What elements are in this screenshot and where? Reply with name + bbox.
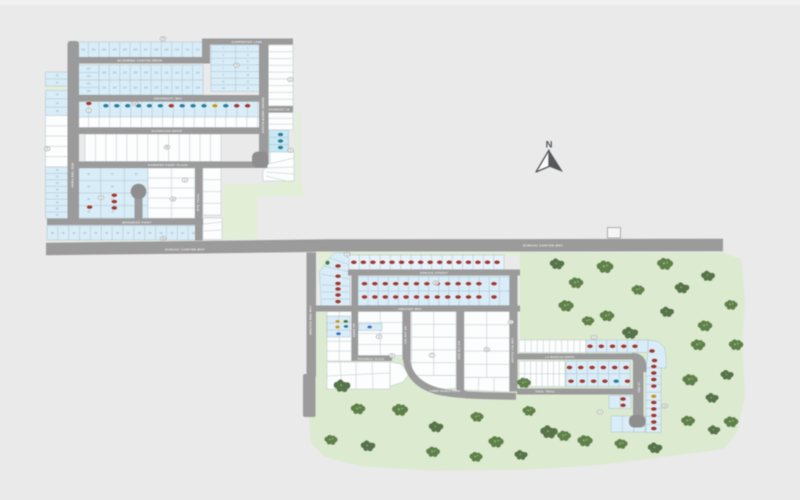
svg-text:N: N — [546, 140, 553, 151]
svg-text:202: 202 — [92, 49, 97, 52]
svg-text:117: 117 — [123, 86, 127, 89]
svg-text:207: 207 — [144, 49, 149, 52]
svg-text:STARDUST LN: STARDUST LN — [268, 109, 289, 112]
svg-text:ARCTIC FIN WAY: ARCTIC FIN WAY — [512, 337, 515, 362]
svg-text:PERENNIAL PLACE: PERENNIAL PLACE — [358, 358, 385, 361]
svg-text:201: 201 — [81, 49, 86, 52]
svg-text:123: 123 — [185, 86, 190, 89]
svg-text:SUNUAC CANYON WAY: SUNUAC CANYON WAY — [165, 248, 205, 252]
svg-text:109: 109 — [144, 71, 149, 74]
svg-text:SPRUCE STREET: SPRUCE STREET — [420, 271, 448, 275]
svg-text:BRETON RED WAY: BRETON RED WAY — [309, 305, 313, 334]
svg-text:VERA DEL SUR: VERA DEL SUR — [71, 163, 75, 188]
svg-text:120: 120 — [154, 86, 159, 89]
svg-text:KERN DR: KERN DR — [353, 323, 356, 337]
svg-text:BLUEWING CANYON DRIVE: BLUEWING CANYON DRIVE — [118, 59, 163, 63]
svg-text:205: 205 — [123, 49, 128, 52]
svg-text:SANDERS POINT PLACE: SANDERS POINT PLACE — [148, 163, 188, 167]
svg-text:RYE TRAIL: RYE TRAIL — [196, 193, 200, 211]
svg-text:113: 113 — [185, 71, 189, 74]
svg-text:LANDY RANCH ROAD: LANDY RANCH ROAD — [430, 390, 461, 393]
svg-text:206: 206 — [133, 49, 138, 52]
svg-text:110: 110 — [154, 71, 158, 74]
svg-text:209: 209 — [165, 49, 170, 52]
svg-text:104: 104 — [87, 90, 92, 93]
svg-text:SOUTH BONDI SHORE: SOUTH BONDI SHORE — [261, 97, 265, 133]
svg-text:108: 108 — [133, 71, 138, 74]
svg-text:122: 122 — [175, 86, 180, 89]
svg-text:TIDAL TRAIL: TIDAL TRAIL — [535, 390, 555, 394]
svg-text:208: 208 — [154, 49, 159, 52]
svg-text:119: 119 — [144, 86, 148, 89]
svg-text:MOONRISE POINT: MOONRISE POINT — [122, 221, 151, 225]
svg-text:203: 203 — [102, 49, 107, 52]
svg-text:CARPENTER LANE: CARPENTER LANE — [232, 40, 263, 44]
svg-text:101: 101 — [87, 68, 92, 71]
svg-text:121: 121 — [165, 86, 170, 89]
svg-text:116: 116 — [113, 86, 117, 89]
svg-text:211: 211 — [185, 49, 189, 52]
svg-text:SUZIRACHA DRIVE: SUZIRACHA DRIVE — [152, 129, 183, 133]
svg-text:LA MANCHA DRIVE: LA MANCHA DRIVE — [545, 355, 574, 359]
svg-text:106: 106 — [113, 71, 118, 74]
svg-text:102: 102 — [87, 75, 92, 78]
svg-text:124: 124 — [196, 86, 201, 89]
svg-text:2ND ST: 2ND ST — [638, 382, 641, 393]
svg-text:RUNCHU CANYON WAY: RUNCHU CANYON WAY — [523, 244, 563, 248]
svg-text:UNIVERSITY WAY: UNIVERSITY WAY — [154, 97, 183, 101]
svg-text:JOE BAY DR: JOE BAY DR — [405, 326, 408, 345]
svg-text:ANN BLV DR: ANN BLV DR — [458, 341, 461, 360]
svg-text:204: 204 — [113, 49, 118, 52]
svg-text:118: 118 — [133, 86, 137, 89]
svg-text:112: 112 — [175, 71, 179, 74]
svg-text:105: 105 — [102, 71, 107, 74]
svg-text:ARECIBO WAY: ARECIBO WAY — [398, 307, 422, 311]
svg-text:107: 107 — [123, 71, 128, 74]
svg-text:103: 103 — [87, 83, 92, 86]
svg-text:210: 210 — [175, 49, 180, 52]
svg-text:212: 212 — [196, 49, 201, 52]
svg-text:114: 114 — [196, 71, 200, 74]
svg-text:115: 115 — [102, 86, 106, 89]
